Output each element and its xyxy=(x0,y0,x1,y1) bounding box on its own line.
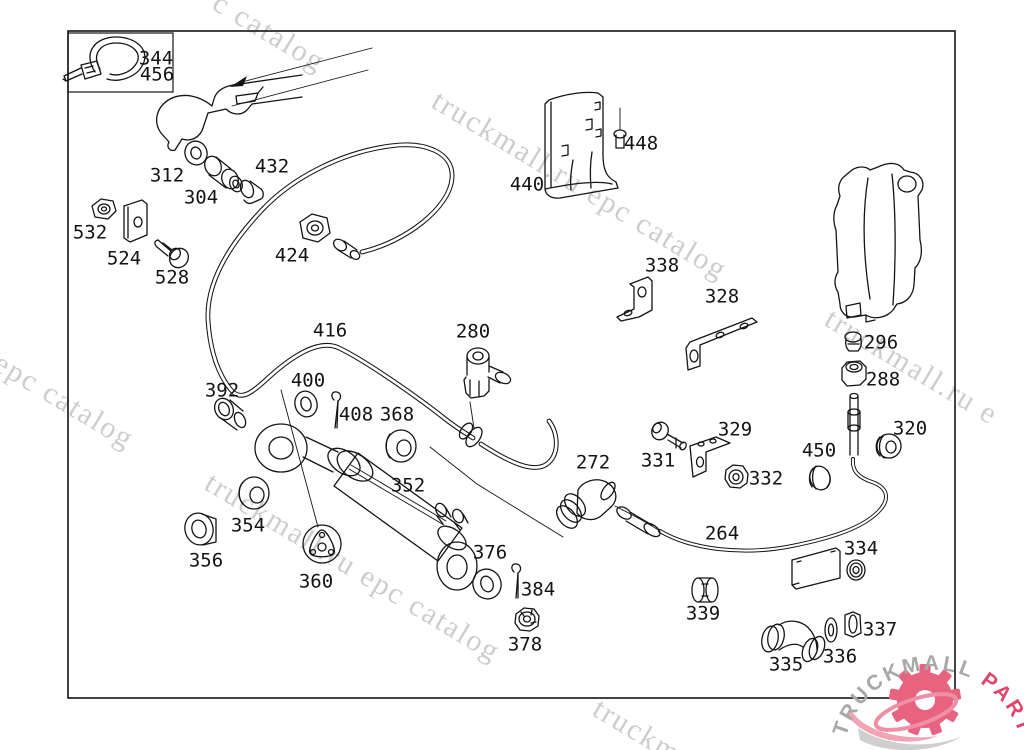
part-label-264: 264 xyxy=(705,525,739,544)
pump-casting-drawing xyxy=(834,163,923,322)
part-337-nut xyxy=(845,612,861,637)
part-296-fitting xyxy=(845,332,861,351)
part-334-nut xyxy=(847,560,865,580)
part-339-spool xyxy=(692,578,718,602)
part-280-tee-fitting xyxy=(464,348,512,428)
leader-line xyxy=(430,447,563,537)
part-label-456: 456 xyxy=(140,66,174,85)
part-label-336: 336 xyxy=(823,648,857,667)
part-331-bolt xyxy=(649,419,688,451)
part-400-washer xyxy=(292,389,320,420)
part-524-plate xyxy=(124,200,147,242)
part-424-nut xyxy=(300,214,361,261)
part-label-288: 288 xyxy=(866,371,900,390)
mounting-plate-drawing xyxy=(792,548,840,589)
part-label-432: 432 xyxy=(255,158,289,177)
part-label-384: 384 xyxy=(521,581,555,600)
part-label-376: 376 xyxy=(473,544,507,563)
part-354-grommet xyxy=(239,477,269,509)
part-label-440: 440 xyxy=(510,176,544,195)
part-label-360: 360 xyxy=(299,573,333,592)
part-label-528: 528 xyxy=(155,269,189,288)
part-label-329: 329 xyxy=(718,421,752,440)
part-label-532: 532 xyxy=(73,224,107,243)
part-356-cap xyxy=(181,510,216,548)
part-label-304: 304 xyxy=(184,189,218,208)
part-label-450: 450 xyxy=(802,442,836,461)
cylinder-352-drawing xyxy=(255,424,477,590)
part-336-washer xyxy=(825,618,837,642)
part-378-castle-nut xyxy=(515,608,539,631)
part-label-354: 354 xyxy=(231,517,265,536)
part-label-416: 416 xyxy=(313,322,347,341)
part-label-296: 296 xyxy=(864,334,898,353)
part-532-nut xyxy=(92,199,116,219)
catalog-page: c catalog truckmall.ru epc catalog l epc… xyxy=(0,0,1024,750)
part-450-plug xyxy=(807,463,833,492)
part-label-424: 424 xyxy=(275,247,309,266)
part-label-408: 408 xyxy=(339,406,373,425)
part-label-378: 378 xyxy=(508,636,542,655)
part-label-338: 338 xyxy=(645,257,679,276)
cable-tie-drawing xyxy=(63,37,145,81)
part-label-368: 368 xyxy=(380,406,414,425)
part-328-bracket xyxy=(686,318,757,370)
part-label-334: 334 xyxy=(844,540,878,559)
part-440-bracket xyxy=(545,92,618,198)
part-label-332: 332 xyxy=(749,470,783,489)
part-label-337: 337 xyxy=(863,621,897,640)
part-label-339: 339 xyxy=(686,605,720,624)
part-label-312: 312 xyxy=(150,167,184,186)
part-288-nut xyxy=(842,361,866,386)
part-label-524: 524 xyxy=(107,250,141,269)
part-label-320: 320 xyxy=(893,420,927,439)
part-label-400: 400 xyxy=(291,372,325,391)
part-338-bracket xyxy=(617,277,652,321)
part-312-ring xyxy=(182,138,210,168)
part-376-washer xyxy=(469,565,506,603)
part-272-elbow xyxy=(553,480,618,532)
part-label-331: 331 xyxy=(641,452,675,471)
part-432-plug xyxy=(238,178,263,203)
part-label-356: 356 xyxy=(189,552,223,571)
part-label-448: 448 xyxy=(624,135,658,154)
part-368-grommet xyxy=(386,430,416,462)
part-label-328: 328 xyxy=(705,288,739,307)
chassis-bracket-drawing xyxy=(157,75,302,150)
part-332-nut xyxy=(725,465,748,488)
pipe-union-fitting xyxy=(848,394,860,456)
part-label-392: 392 xyxy=(205,382,239,401)
part-label-272: 272 xyxy=(576,454,610,473)
part-360-flange xyxy=(303,525,341,563)
part-label-352: 352 xyxy=(391,477,425,496)
part-329-bracket xyxy=(690,437,730,477)
part-label-335: 335 xyxy=(769,656,803,675)
part-label-280: 280 xyxy=(456,323,490,342)
part-384-cotter-pin xyxy=(512,564,521,598)
